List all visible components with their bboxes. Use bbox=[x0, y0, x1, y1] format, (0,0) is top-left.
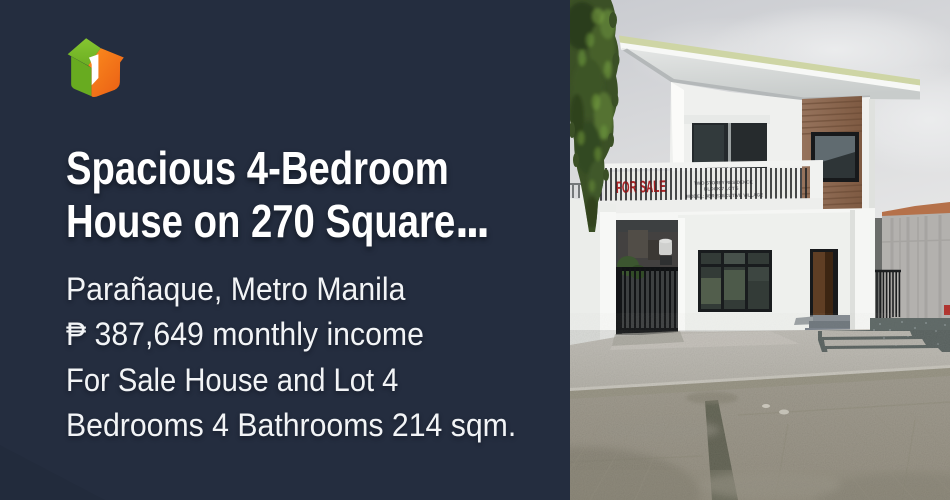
svg-text:FOR SALE: FOR SALE bbox=[616, 178, 666, 197]
